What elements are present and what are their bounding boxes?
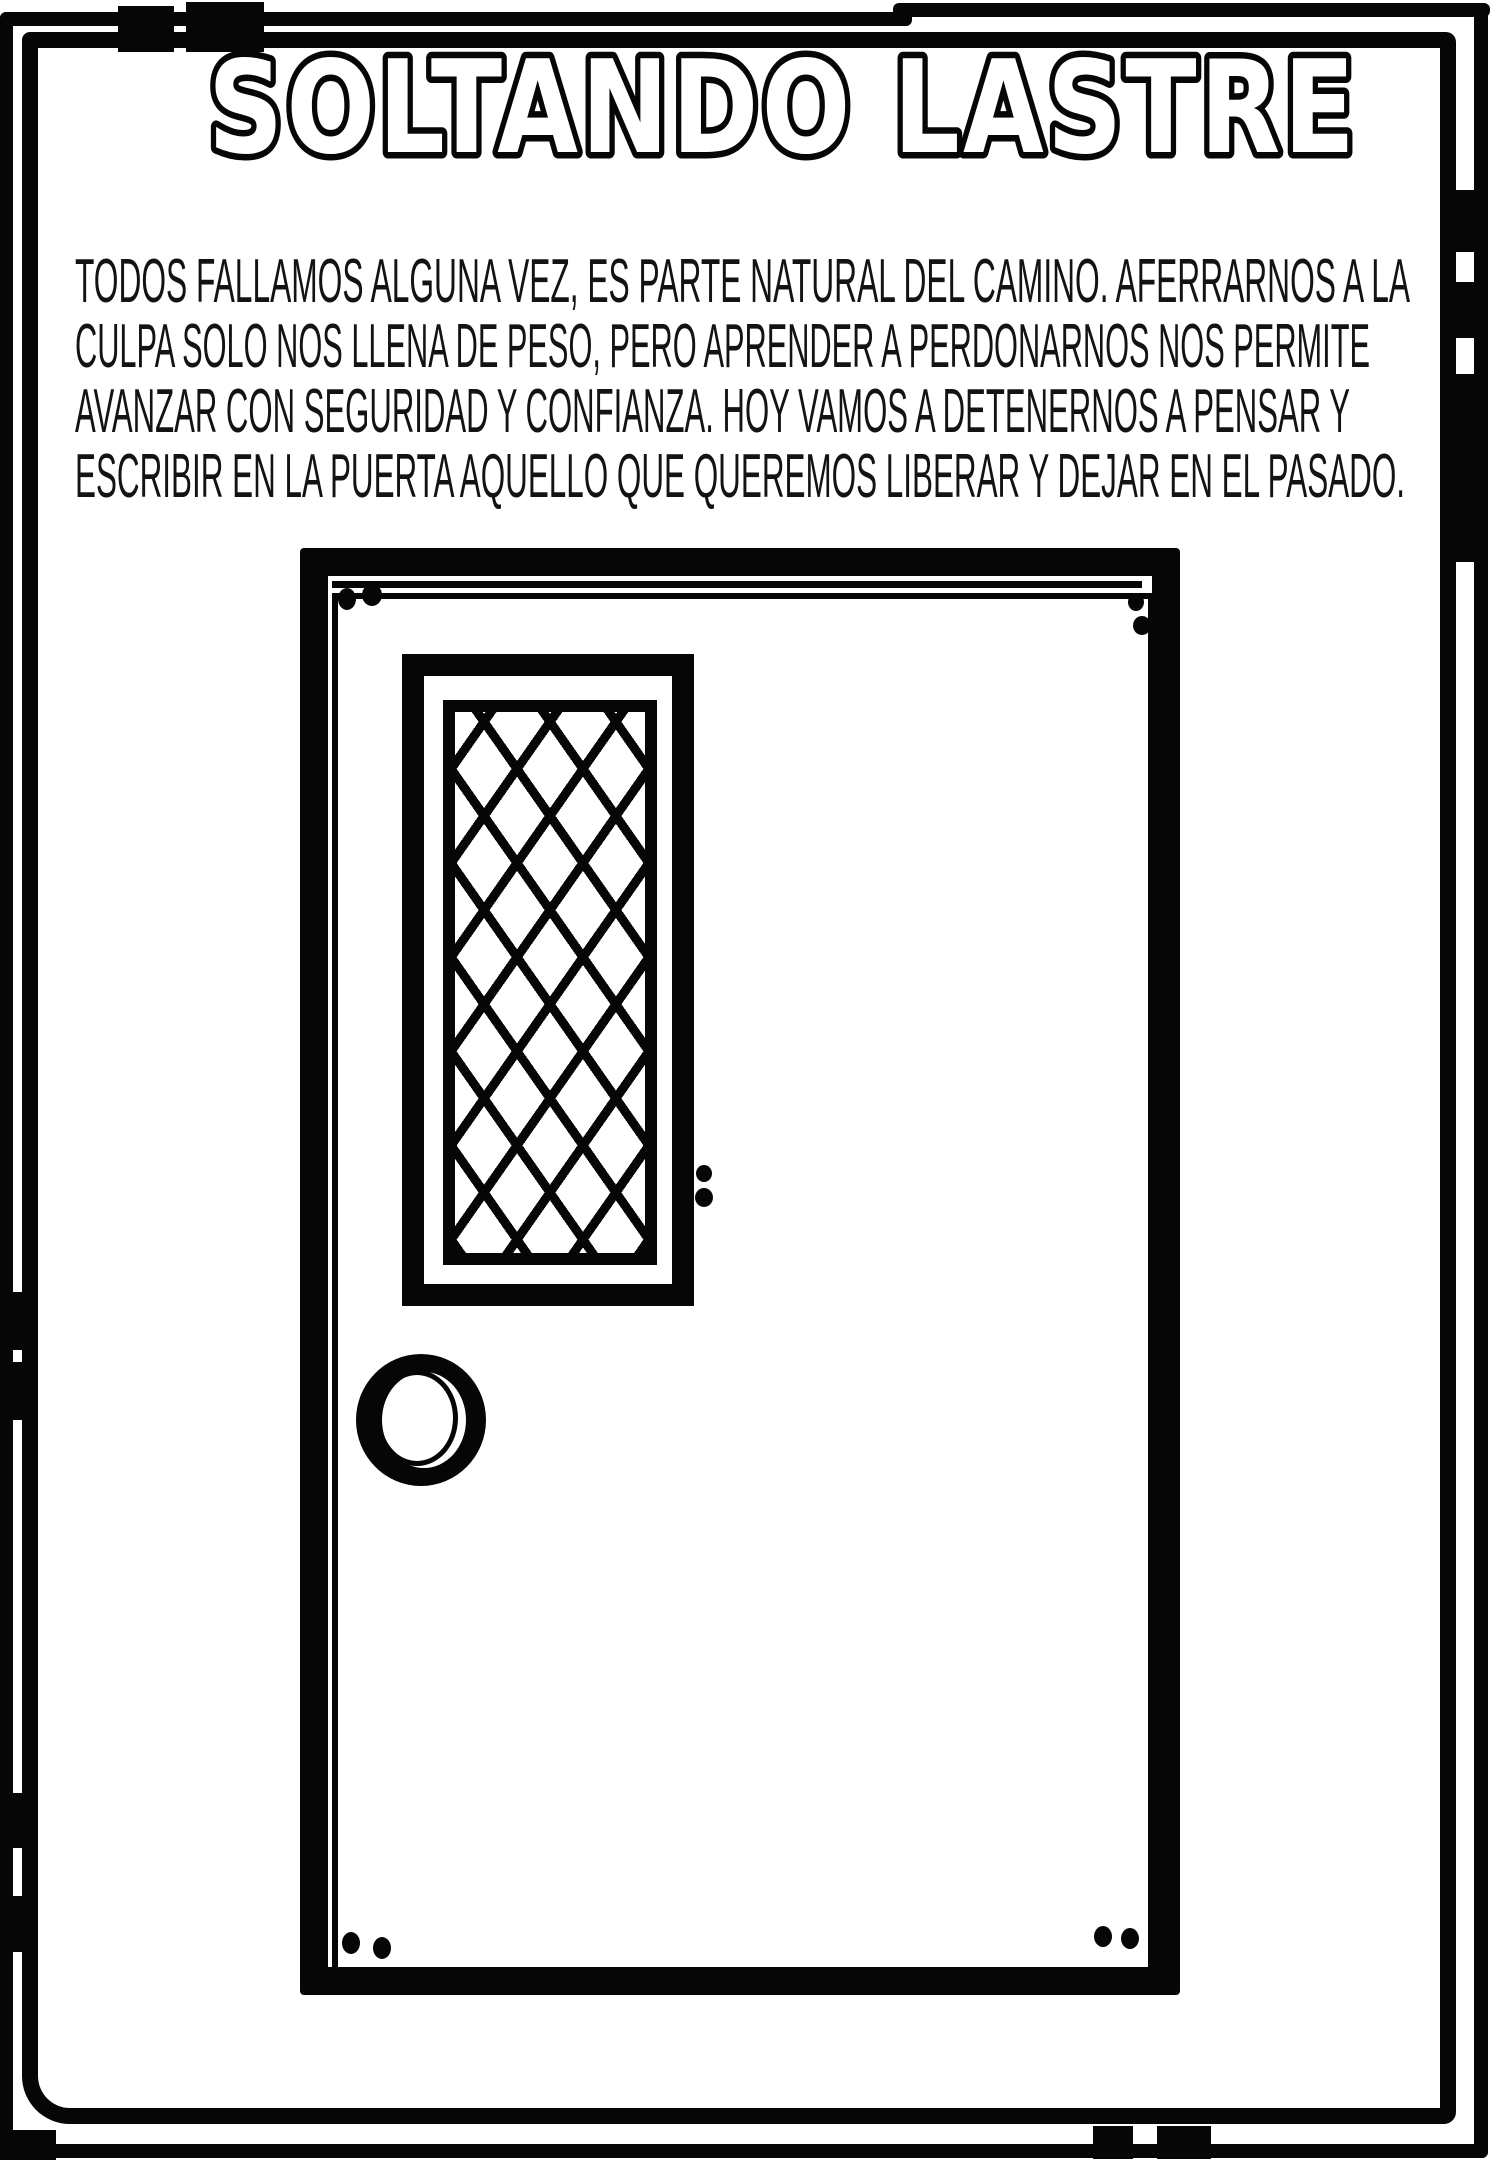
paragraph-line: TODOS FALLAMOS ALGUNA VEZ, ES PARTE NATU… bbox=[75, 247, 1410, 316]
border-patch bbox=[0, 2130, 56, 2160]
screw-dots bbox=[1133, 616, 1151, 635]
screw-dots bbox=[373, 1937, 391, 1959]
border-patch bbox=[0, 1793, 30, 1848]
screw-dots bbox=[696, 1165, 712, 1182]
screw-dots bbox=[338, 588, 356, 610]
screw-dots bbox=[695, 1188, 713, 1207]
door-illustration bbox=[300, 548, 1180, 1995]
border-patch bbox=[1093, 2126, 1133, 2159]
paragraph-line: ESCRIBIR EN LA PUERTA AQUELLO QUE QUEREM… bbox=[75, 442, 1405, 511]
door-knob bbox=[356, 1354, 486, 1486]
border-outer-bottom bbox=[4, 2144, 1488, 2158]
page-title-art: SOLTANDO LASTRE bbox=[0, 0, 1500, 230]
screw-dots bbox=[342, 1932, 360, 1954]
intro-paragraph: TODOS FALLAMOS ALGUNA VEZ, ES PARTE NATU… bbox=[0, 230, 1500, 530]
border-patch bbox=[0, 1362, 30, 1420]
door-window-inner-frame bbox=[443, 700, 657, 1265]
paragraph-line: CULPA SOLO NOS LLENA DE PESO, PERO APREN… bbox=[75, 312, 1370, 381]
screw-dots bbox=[1094, 1926, 1112, 1947]
screw-dots bbox=[362, 584, 382, 606]
screw-dots bbox=[1121, 1928, 1139, 1949]
screw-dots bbox=[1128, 593, 1144, 611]
border-patch bbox=[0, 1292, 30, 1350]
page-title: SOLTANDO LASTRE bbox=[208, 34, 1358, 183]
border-patch bbox=[1157, 2126, 1211, 2159]
door-knob-ring bbox=[376, 1370, 458, 1466]
worksheet-page: SOLTANDO LASTRE TODOS FALLAMOS ALGUNA VE… bbox=[0, 0, 1500, 2166]
border-patch bbox=[0, 1896, 30, 1952]
door-window-lattice bbox=[455, 712, 645, 1253]
door-window-frame bbox=[402, 654, 694, 1306]
paragraph-line: AVANZAR CON SEGURIDAD Y CONFIANZA. HOY V… bbox=[75, 377, 1350, 446]
door-top-trim-line bbox=[332, 581, 1142, 588]
